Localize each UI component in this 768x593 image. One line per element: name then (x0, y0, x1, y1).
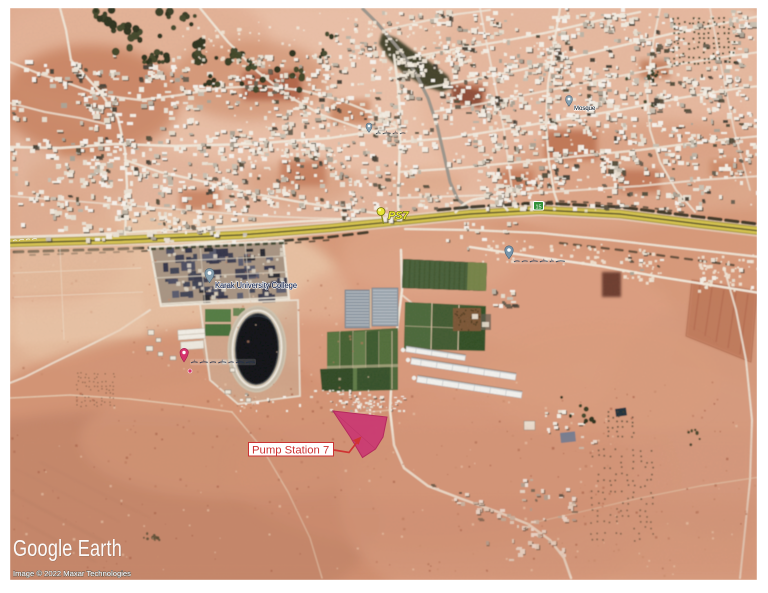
svg-text:Mosque: Mosque (574, 106, 596, 112)
svg-text:Google Earth: Google Earth (13, 535, 122, 561)
svg-text:PS7: PS7 (388, 210, 409, 222)
svg-text:Pump Station 7: Pump Station 7 (252, 444, 329, 456)
svg-text:15: 15 (535, 204, 541, 210)
svg-text:Image © 2022 Maxar Technologie: Image © 2022 Maxar Technologies (13, 569, 131, 578)
svg-text:Karak University College: Karak University College (215, 281, 297, 290)
